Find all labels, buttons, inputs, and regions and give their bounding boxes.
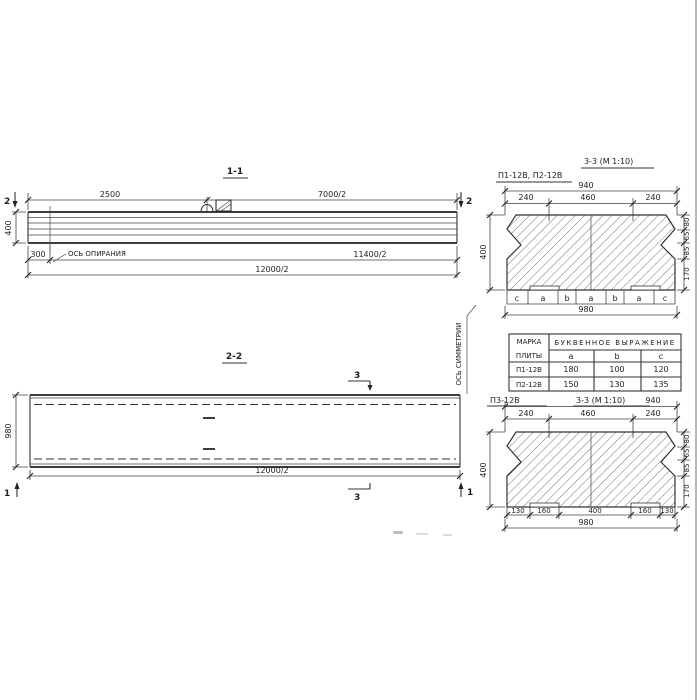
symmetry-axis: ОСЬ СИММЕТРИИ xyxy=(455,305,476,394)
dim-160-1: 160 xyxy=(537,507,550,515)
table-row: П1-12В 180 100 120 xyxy=(516,365,669,374)
blueprint-page: 1-1 2 2 2500 7000/2 400 300 ОСЬ ОПИРАНИЯ xyxy=(0,0,700,700)
detail-flag-hatch xyxy=(216,200,231,211)
dim-400: 400 xyxy=(4,220,13,235)
dim-130-1: 130 xyxy=(511,507,524,515)
beam-inner-lines xyxy=(28,218,457,236)
table-header-marka: МАРКА xyxy=(517,338,542,346)
dim-240-right: 240 xyxy=(645,409,660,418)
symmetry-label: ОСЬ СИММЕТРИИ xyxy=(455,322,463,385)
dim-line-400 xyxy=(486,432,505,507)
dim-300: 300 xyxy=(30,250,45,259)
dim-980: 980 xyxy=(578,305,593,314)
cell-c: 120 xyxy=(653,365,668,374)
arrowhead-up-icon xyxy=(459,482,464,489)
dim-160-2: 160 xyxy=(638,507,651,515)
parameters-table: МАРКА ПЛИТЫ БУКВЕННОЕ ВЫРАЖЕНИЕ a b c П1… xyxy=(509,334,681,391)
arrowhead-down-icon xyxy=(459,201,464,208)
dim-65: 65 xyxy=(683,449,691,458)
section-2-2-title: 2-2 xyxy=(226,352,242,362)
cut-mark-3-top: 3 xyxy=(354,371,360,381)
section-1-1: 1-1 2 2 2500 7000/2 400 300 ОСЬ ОПИРАНИЯ xyxy=(4,167,472,278)
table-col-a: a xyxy=(569,352,574,361)
table-header-plity: ПЛИТЫ xyxy=(516,352,542,360)
dim-940: 940 xyxy=(578,181,593,190)
letter-a: a xyxy=(589,294,594,303)
plan-side-edges xyxy=(30,395,460,467)
dim-12000-2: 12000/2 xyxy=(255,466,288,475)
dim-400: 400 xyxy=(479,244,488,259)
dim-7000-2: 7000/2 xyxy=(318,190,346,199)
scan-smudge xyxy=(443,534,452,536)
cut-mark-1-right: 1 xyxy=(467,488,473,498)
dim-240-right: 240 xyxy=(645,193,660,202)
letter-c: c xyxy=(515,294,519,303)
cut-mark-3-bottom: 3 xyxy=(354,493,360,503)
dim-460: 460 xyxy=(580,193,595,202)
scan-smudge xyxy=(416,533,428,535)
letter-a: a xyxy=(541,294,546,303)
arrowhead-up-icon xyxy=(15,482,20,489)
cell-mark: П2-12В xyxy=(516,381,542,389)
leader-line xyxy=(53,254,66,262)
bottom-recess xyxy=(530,286,559,290)
cut-mark-1-left: 1 xyxy=(4,489,10,499)
hidden-lines xyxy=(34,405,456,460)
dim-12000-2: 12000/2 xyxy=(255,265,288,274)
bottom-recess xyxy=(631,286,660,290)
dim-line-980 xyxy=(12,395,28,467)
beam-end-edges xyxy=(28,212,457,243)
letter-a: a xyxy=(637,294,642,303)
dim-80: 80 xyxy=(683,218,691,227)
dim-980: 980 xyxy=(4,423,13,438)
table-col-c: c xyxy=(659,352,663,361)
cell-a: 150 xyxy=(563,380,578,389)
cell-a: 180 xyxy=(563,365,578,374)
section-1-1-title: 1-1 xyxy=(227,167,243,177)
drawing-canvas: 1-1 2 2 2500 7000/2 400 300 ОСЬ ОПИРАНИЯ xyxy=(0,0,700,700)
section-2-2: 2-2 3 980 12000/2 1 1 3 xyxy=(4,352,473,503)
dim-240-left: 240 xyxy=(518,409,533,418)
section-3-3b-title: 3-3 (М 1:10) xyxy=(576,396,625,405)
dim-940: 940 xyxy=(645,396,660,405)
dim-130-2: 130 xyxy=(660,507,673,515)
plate-marks-label: П1-12В, П2-12В xyxy=(498,171,562,180)
arrowhead-down-icon xyxy=(13,201,18,208)
dim-980: 980 xyxy=(578,518,593,527)
dim-line-top xyxy=(28,193,457,212)
letter-b: b xyxy=(612,294,617,303)
letter-b: b xyxy=(564,294,569,303)
dim-line-12000 xyxy=(30,470,460,480)
cut-mark-2-right: 2 xyxy=(466,197,472,207)
dim-2500: 2500 xyxy=(100,190,120,199)
letter-c: c xyxy=(663,294,667,303)
scan-smudge xyxy=(393,531,403,534)
section-3-3-bottom: П3-12В 3-3 (М 1:10) 940 240 460 240 400 … xyxy=(479,396,691,532)
dim-line-400 xyxy=(486,215,505,290)
dim-400-bottom: 400 xyxy=(588,507,601,515)
cut-mark-2-left: 2 xyxy=(4,197,10,207)
cell-b: 130 xyxy=(609,380,624,389)
table-header-expression: БУКВЕННОЕ ВЫРАЖЕНИЕ xyxy=(554,339,675,347)
dim-460: 460 xyxy=(580,409,595,418)
plan-inner-edges xyxy=(30,398,460,464)
cell-c: 135 xyxy=(653,380,668,389)
support-axis-label: ОСЬ ОПИРАНИЯ xyxy=(68,250,126,258)
dim-85: 85 xyxy=(683,464,691,473)
arrowhead-down-icon xyxy=(368,385,373,391)
section-3-3a-title: 3-3 (М 1:10) xyxy=(584,157,633,166)
cut-mark-3-bottom-line xyxy=(348,483,370,489)
cut-mark-3-top-line xyxy=(348,381,370,387)
table-col-b: b xyxy=(614,352,619,361)
section-3-3-top: 3-3 (М 1:10) П1-12В, П2-12В 940 240 460 … xyxy=(479,157,691,319)
dim-85: 85 xyxy=(683,247,691,256)
dim-240-left: 240 xyxy=(518,193,533,202)
dim-line-400 xyxy=(12,212,26,243)
symmetry-leader xyxy=(467,305,476,394)
table-row: П2-12В 150 130 135 xyxy=(516,380,669,389)
dim-80: 80 xyxy=(683,435,691,444)
dim-11400-2: 11400/2 xyxy=(353,250,386,259)
beam-edges xyxy=(28,212,457,243)
dim-400: 400 xyxy=(479,462,488,477)
dim-65: 65 xyxy=(683,232,691,241)
cell-b: 100 xyxy=(609,365,624,374)
plan-outer-edges xyxy=(30,395,460,467)
dim-170: 170 xyxy=(683,484,691,497)
center-dashes xyxy=(203,418,215,449)
dim-170: 170 xyxy=(683,267,691,280)
cell-mark: П1-12В xyxy=(516,366,542,374)
